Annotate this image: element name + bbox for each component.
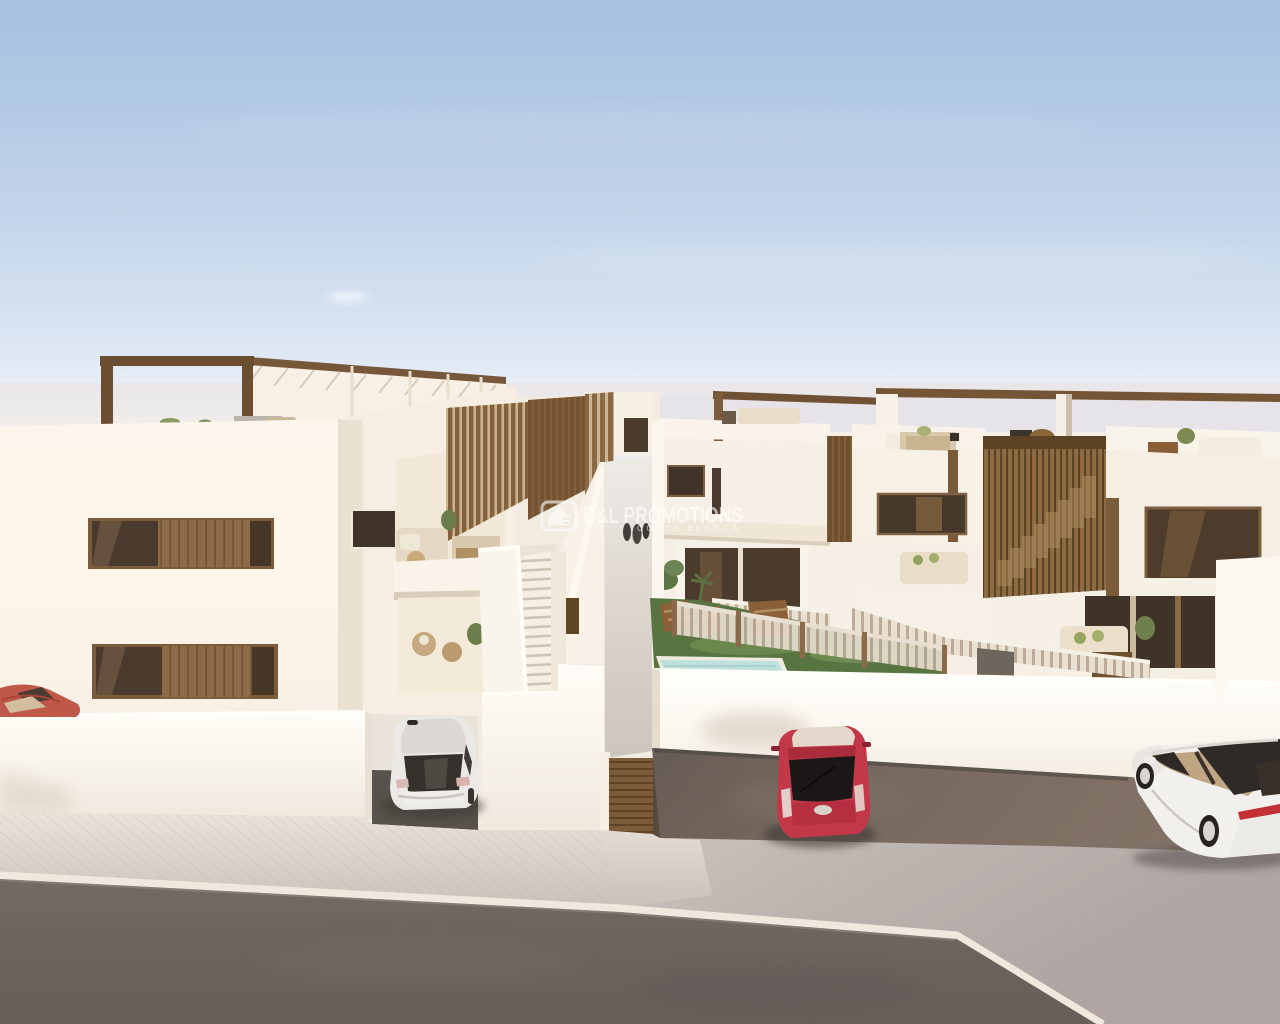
svg-text:COSTA BLANCA: COSTA BLANCA bbox=[637, 524, 741, 533]
